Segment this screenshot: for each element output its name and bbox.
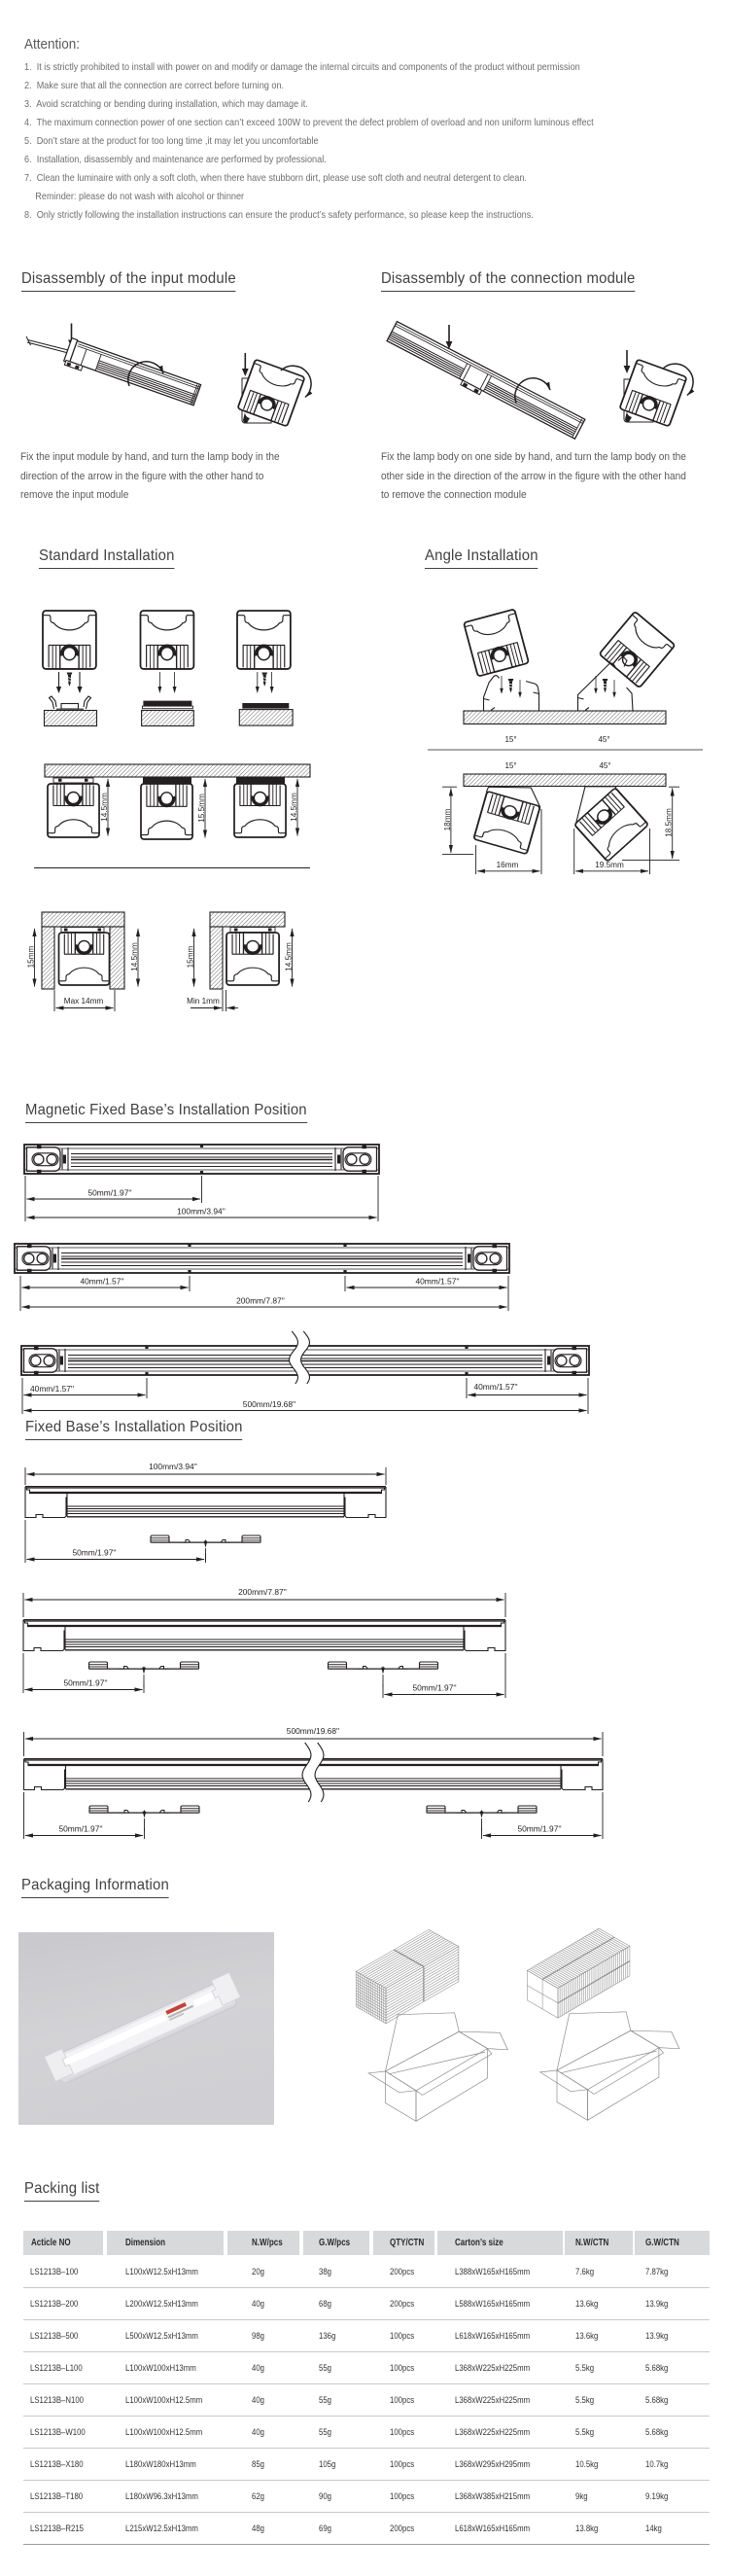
svg-text:45°: 45° [598,735,609,744]
svg-text:15°: 15° [504,735,516,744]
svg-text:15°: 15° [504,761,516,770]
svg-text:Min 1mm: Min 1mm [187,997,220,1006]
svg-text:16mm: 16mm [497,861,519,869]
svg-text:500mm/19.68'': 500mm/19.68'' [243,1399,296,1409]
svg-text:18mm: 18mm [443,808,452,830]
svg-text:14.5mm: 14.5mm [285,942,294,971]
svg-text:15.5mm: 15.5mm [197,794,206,823]
svg-text:500mm/19.68'': 500mm/19.68'' [287,1726,340,1736]
svg-text:14.5mm: 14.5mm [130,942,139,971]
svg-text:18.5mm: 18.5mm [665,808,674,837]
svg-text:50mm/1.97'': 50mm/1.97'' [58,1824,102,1834]
svg-text:Max 14mm: Max 14mm [64,997,104,1006]
svg-text:14.5mm: 14.5mm [100,793,109,822]
svg-text:200mm/7.87'': 200mm/7.87'' [236,1296,285,1306]
svg-text:40mm/1.57'': 40mm/1.57'' [473,1382,517,1392]
svg-text:14.5mm: 14.5mm [290,793,298,822]
svg-text:40mm/1.57'': 40mm/1.57'' [415,1277,459,1287]
svg-text:200mm/7.87'': 200mm/7.87'' [238,1587,287,1597]
svg-text:50mm/1.97'': 50mm/1.97'' [87,1188,131,1198]
svg-text:50mm/1.97'': 50mm/1.97'' [63,1678,107,1688]
svg-text:50mm/1.97'': 50mm/1.97'' [517,1824,561,1834]
svg-text:40mm/1.57'': 40mm/1.57'' [30,1384,74,1394]
svg-text:45°: 45° [599,761,610,770]
svg-text:40mm/1.57'': 40mm/1.57'' [80,1277,123,1287]
svg-text:50mm/1.97'': 50mm/1.97'' [412,1683,456,1693]
svg-text:50mm/1.97'': 50mm/1.97'' [72,1548,116,1558]
svg-text:100mm/3.94'': 100mm/3.94'' [149,1462,197,1471]
svg-text:15mm: 15mm [27,945,36,968]
svg-text:15mm: 15mm [187,945,195,968]
svg-text:19.5mm: 19.5mm [595,861,624,869]
svg-text:100mm/3.94'': 100mm/3.94'' [177,1207,226,1217]
